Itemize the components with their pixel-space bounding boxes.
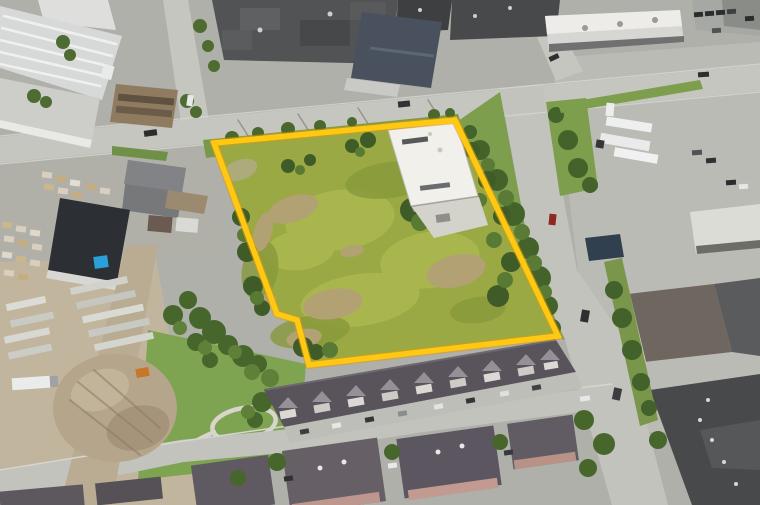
trees-arterial-east bbox=[622, 340, 642, 360]
industrial-roof-patches bbox=[222, 30, 252, 50]
trees-arterial-east bbox=[632, 373, 650, 391]
townhouse-south-rooftop-units bbox=[460, 444, 465, 449]
townhouse-south-rooftop-units bbox=[436, 450, 441, 455]
west-tree-cluster-light bbox=[241, 405, 255, 419]
plaza-rooftop-units bbox=[617, 21, 623, 27]
trees-arterial-east bbox=[641, 400, 657, 416]
parking-lot-verge-trees bbox=[582, 177, 598, 193]
industrial-rooftop-vents bbox=[418, 8, 422, 12]
townhouse-south-trees bbox=[649, 431, 667, 449]
roadside-trees-northwest bbox=[202, 40, 214, 52]
semi-truck-cab bbox=[50, 376, 59, 388]
roadside-trees-northwest bbox=[56, 35, 70, 49]
industrial-rooftop-vents bbox=[258, 28, 263, 33]
parked-cars-lot-east bbox=[739, 184, 748, 190]
townhouse-south-trees bbox=[593, 433, 615, 455]
roadside-trees-northwest bbox=[40, 96, 52, 108]
parked-cars-row-northeast bbox=[694, 12, 703, 18]
warehouse-south-vents bbox=[722, 460, 726, 464]
industrial-roof-patches bbox=[300, 20, 350, 46]
west-tree-cluster-light bbox=[173, 321, 187, 335]
box-truck-white bbox=[605, 103, 614, 117]
parcel-trees bbox=[304, 154, 316, 166]
aerial-photo bbox=[0, 0, 760, 505]
trees-east-of-parcel-light bbox=[514, 224, 530, 240]
parked-cars-lot-east bbox=[706, 158, 716, 164]
aerial-scene-canvas bbox=[0, 0, 760, 505]
parcel-bushes bbox=[486, 232, 502, 248]
west-tree-cluster-light bbox=[244, 364, 260, 380]
lumber-store-blue-banner bbox=[93, 255, 109, 269]
parcel-trees bbox=[281, 159, 295, 173]
townhouse-south-trees bbox=[574, 410, 594, 430]
townhouse-south-trees bbox=[268, 453, 286, 471]
parked-cars-row-northeast bbox=[745, 16, 754, 22]
cars-on-roads bbox=[698, 72, 709, 78]
industrial-rooftop-vents bbox=[328, 12, 333, 17]
cars-on-roads bbox=[398, 100, 411, 107]
townhouse-south-trees bbox=[492, 434, 508, 450]
parcel-trees bbox=[360, 132, 376, 148]
parked-cars-row-northeast bbox=[705, 11, 714, 17]
warehouse-south-vents bbox=[734, 482, 738, 486]
roadside-trees-northwest bbox=[190, 106, 202, 118]
parking-lot-verge-trees bbox=[568, 158, 588, 178]
west-tree-cluster-light bbox=[228, 345, 242, 359]
plaza-rooftop-units bbox=[582, 25, 588, 31]
industrial-roof-patches bbox=[240, 8, 280, 30]
parcel-bushes bbox=[250, 291, 264, 305]
cars-on-roads bbox=[548, 214, 556, 226]
truck-cab-2 bbox=[595, 139, 604, 148]
parcel-bushes bbox=[355, 147, 365, 157]
townhouse-south-rooftop-units bbox=[318, 466, 323, 471]
parked-cars-lot-east bbox=[726, 180, 736, 186]
warehouse-south-vents bbox=[710, 438, 714, 442]
industrial-rooftop-vents bbox=[473, 14, 477, 18]
roadside-trees-northwest bbox=[27, 89, 41, 103]
parked-cars-row-northeast bbox=[716, 10, 725, 16]
townhouse-south-rooftop-units bbox=[342, 460, 347, 465]
westside-brick-section bbox=[147, 215, 172, 233]
townhouse-south-trees bbox=[579, 459, 597, 477]
west-tree-cluster-light bbox=[261, 369, 279, 387]
roadside-trees-northwest bbox=[64, 49, 76, 61]
warehouse-south-vents bbox=[706, 398, 710, 402]
parking-lot-verge-trees bbox=[558, 130, 578, 150]
warehouse-brown-roof bbox=[628, 284, 732, 362]
parked-cars-row-northeast bbox=[712, 28, 721, 34]
parcel-trees bbox=[487, 285, 509, 307]
vacant-building-units bbox=[428, 132, 432, 136]
corner-building-dark-section bbox=[722, 0, 760, 30]
industrial-rooftop-vents bbox=[508, 6, 512, 10]
trees-east-of-parcel-light bbox=[498, 190, 514, 206]
parcel-bushes bbox=[322, 342, 338, 358]
warehouse-south-vents bbox=[698, 418, 702, 422]
vacant-building-units bbox=[438, 148, 443, 153]
parked-cars-row-northeast bbox=[727, 9, 736, 15]
roadside-trees-northwest bbox=[193, 19, 207, 33]
trees-arterial-east bbox=[605, 281, 623, 299]
plaza-rooftop-units bbox=[652, 17, 658, 23]
lumber-store-roof bbox=[48, 198, 130, 282]
industrial-roof-block-east bbox=[450, 0, 560, 40]
west-tree-cluster-light bbox=[198, 341, 212, 355]
roadside-trees-northwest bbox=[208, 60, 220, 72]
west-tree-cluster bbox=[179, 291, 197, 309]
trees-arterial-east bbox=[612, 308, 632, 328]
parked-cars-lot-east bbox=[692, 150, 702, 156]
blue-shelter-structure bbox=[585, 234, 624, 261]
westside-white-shed bbox=[175, 217, 198, 233]
parcel-bushes bbox=[497, 272, 513, 288]
townhouse-south-trees bbox=[384, 444, 400, 460]
parcel-bushes bbox=[295, 165, 305, 175]
townhouse-south-trees bbox=[230, 470, 246, 486]
